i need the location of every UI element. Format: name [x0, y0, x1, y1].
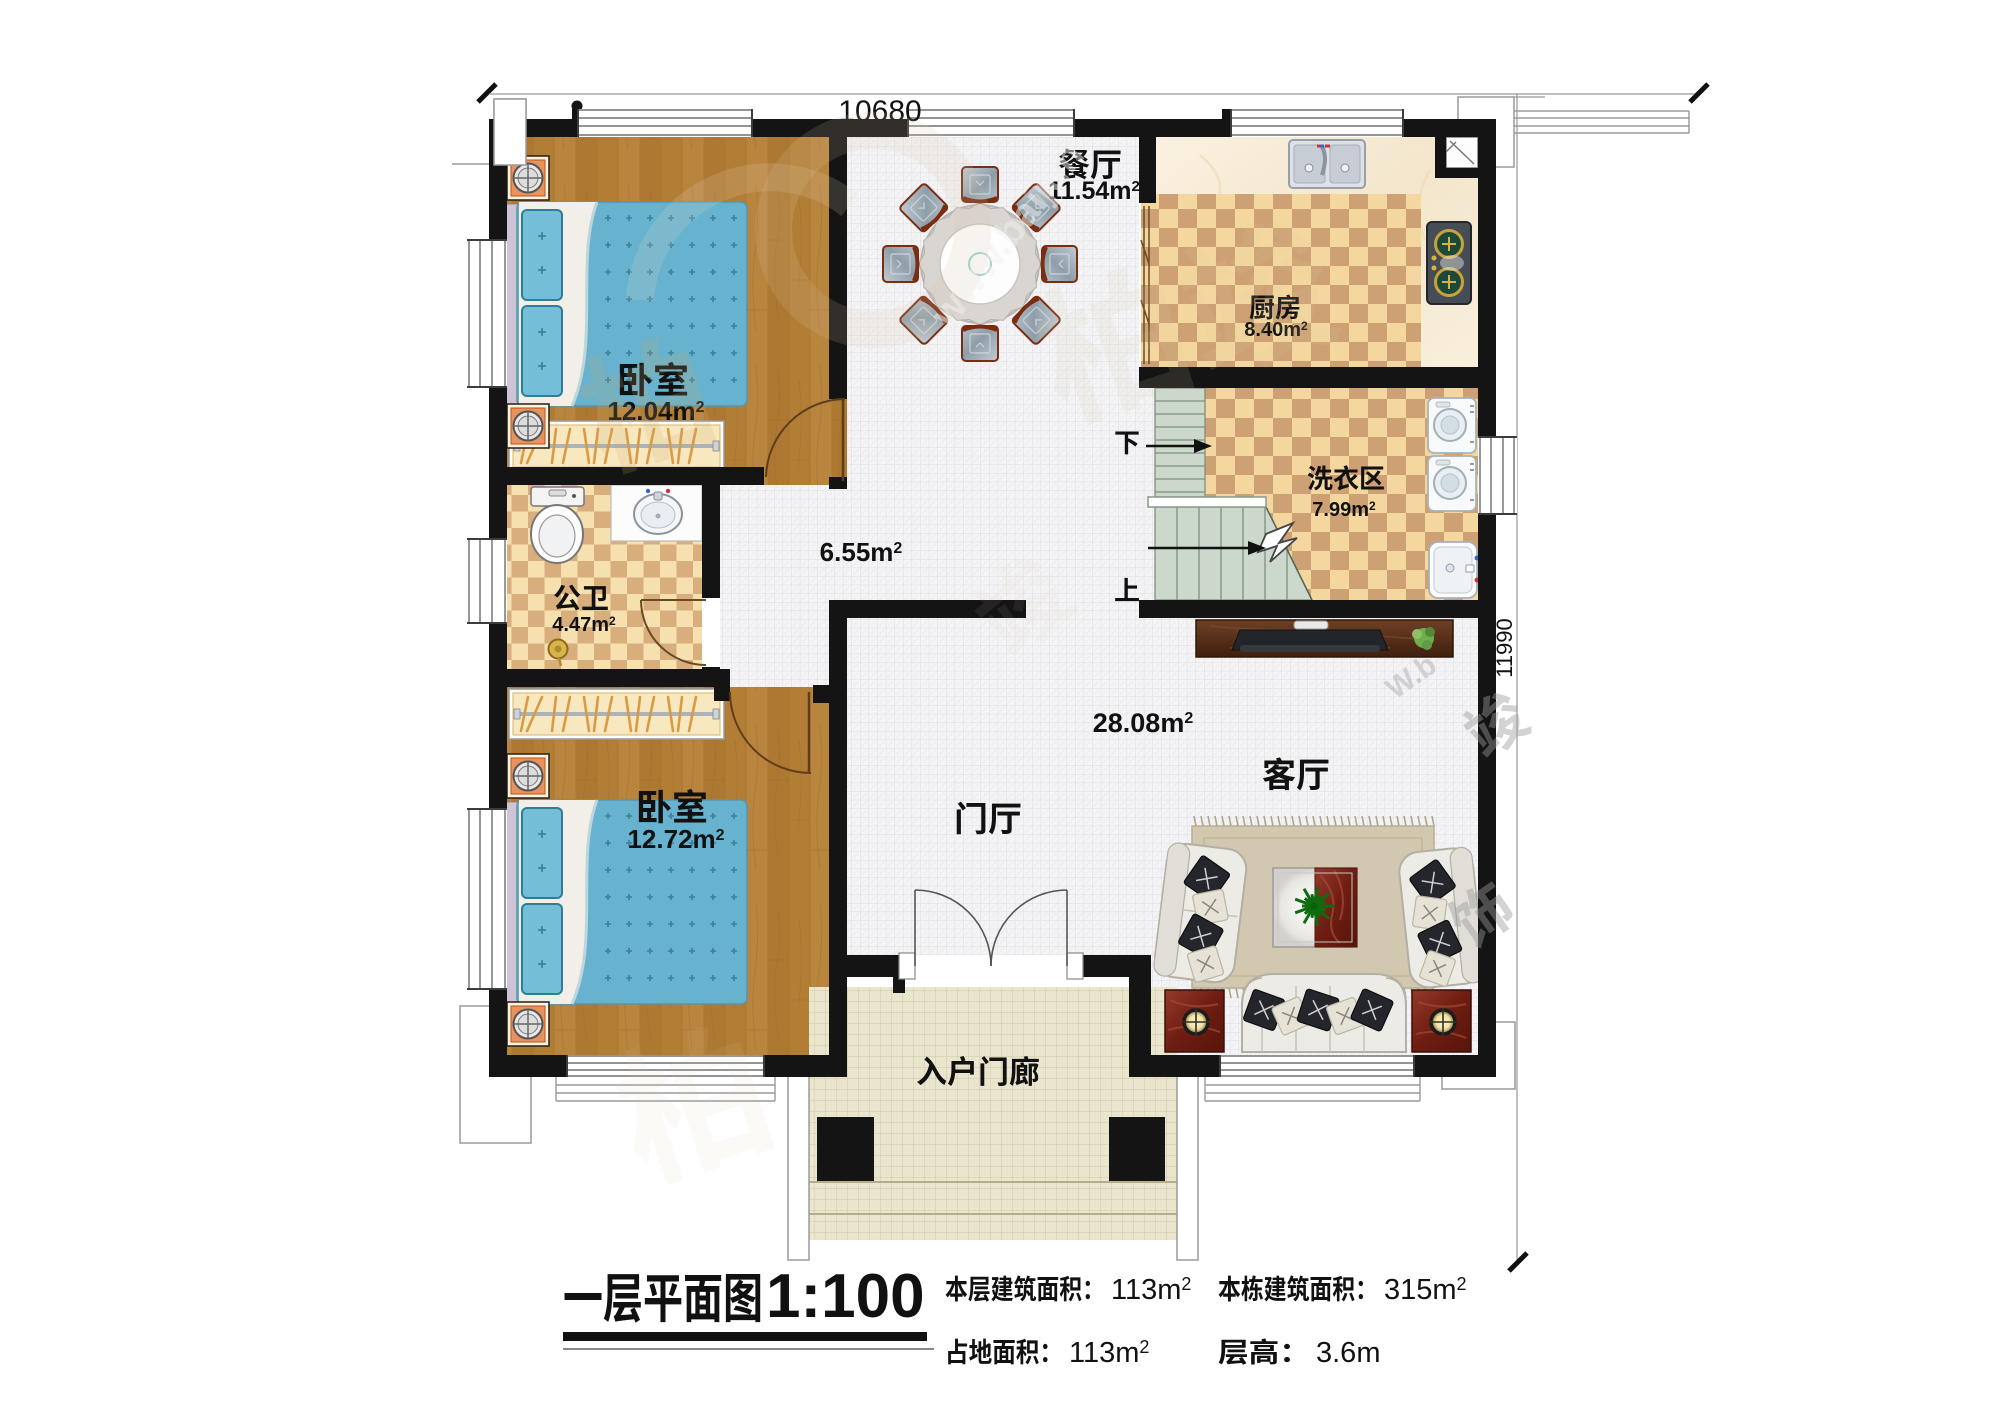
- svg-text:1:100: 1:100: [766, 1262, 925, 1331]
- svg-text:上: 上: [1114, 571, 1140, 608]
- svg-text:洗衣区: 洗衣区: [1307, 459, 1385, 496]
- svg-text:113m2: 113m2: [1069, 1337, 1149, 1369]
- svg-text:占地面积：: 占地面积：: [945, 1331, 1063, 1370]
- svg-text:11990: 11990: [1492, 618, 1517, 678]
- svg-text:28.08m2: 28.08m2: [1093, 701, 1194, 740]
- svg-text:3.6m: 3.6m: [1316, 1337, 1380, 1369]
- svg-text:本栋建筑面积：: 本栋建筑面积：: [1218, 1268, 1378, 1307]
- svg-text:7.99m2: 7.99m2: [1312, 493, 1376, 522]
- svg-text:层高：: 层高：: [1218, 1331, 1310, 1370]
- svg-text:4.47m2: 4.47m2: [552, 608, 616, 637]
- svg-text:113m2: 113m2: [1111, 1274, 1191, 1306]
- svg-text:门厅: 门厅: [954, 792, 1022, 841]
- svg-text:6.55m2: 6.55m2: [820, 532, 903, 569]
- svg-text:本层建筑面积：: 本层建筑面积：: [945, 1268, 1105, 1307]
- svg-text:入户门廊: 入户门廊: [916, 1047, 1040, 1092]
- svg-text:客厅: 客厅: [1262, 748, 1330, 797]
- svg-text:315m2: 315m2: [1384, 1274, 1467, 1306]
- svg-text:一层平面图: 一层平面图: [563, 1257, 763, 1333]
- svg-text:12.72m2: 12.72m2: [627, 819, 724, 856]
